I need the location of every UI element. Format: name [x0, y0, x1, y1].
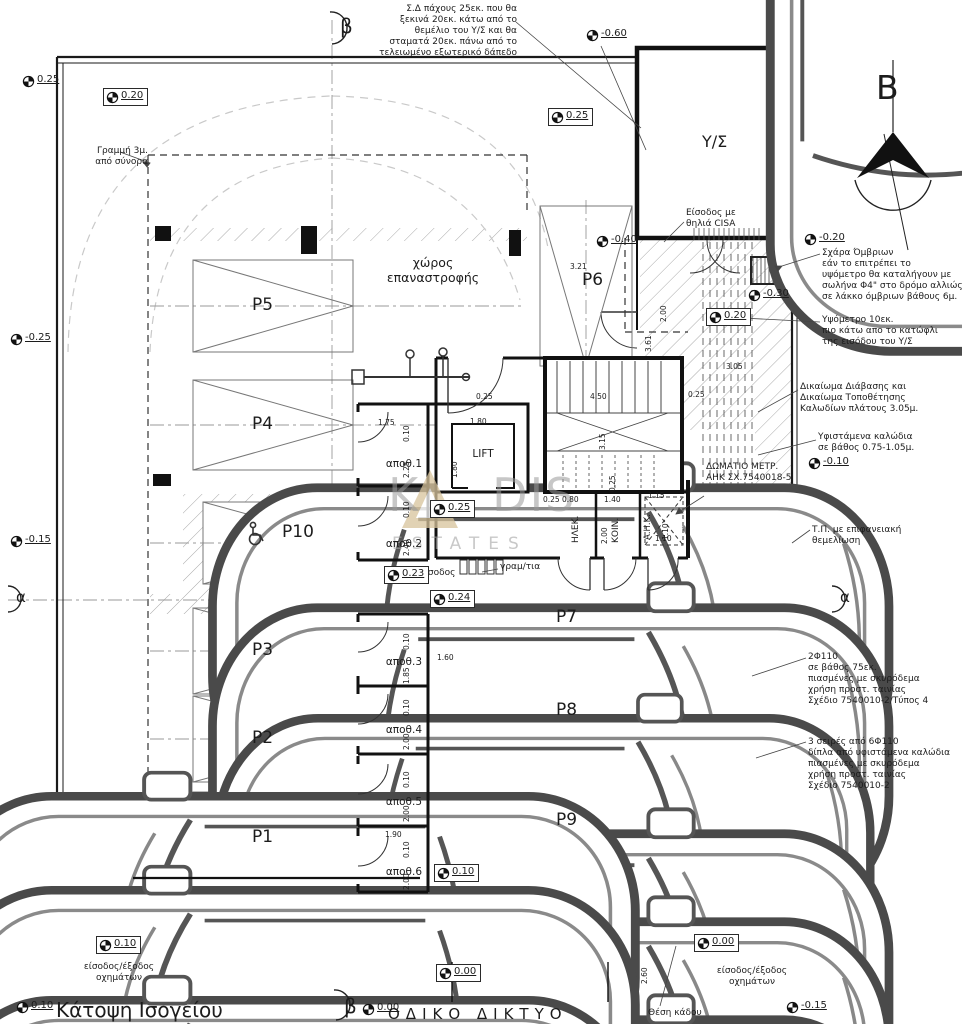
benchmark-icon [16, 1001, 29, 1014]
note-ypsometro: Υψόμετρο 10εκ. πιο κάτω απο το κατώφλι τ… [822, 315, 938, 348]
dim-wall-025c: 0.25 [543, 495, 560, 504]
elev-right-top: -0.20 [804, 232, 845, 246]
label-road-network: ΟΔΙΚΟ ΔΙΚΤΥΟ [388, 1005, 568, 1023]
room-substation: Υ/Σ [702, 132, 727, 152]
stall-p9: P9 [556, 810, 577, 831]
elev-box-bl: 0.10 [96, 936, 141, 954]
benchmark-icon [106, 91, 119, 104]
note-boundary: Γραμμή 3μ. από σύνορα [76, 146, 148, 168]
stall-p1: P1 [252, 827, 273, 848]
benchmark-icon [362, 1003, 375, 1016]
elev-left-low: -0.15 [10, 534, 51, 548]
dim-wall-025b: 0.25 [688, 390, 705, 399]
benchmark-icon [808, 457, 821, 470]
plan-title: Κάτοψη Ισογείου [56, 998, 223, 1022]
dim-bin: 2.60 [640, 967, 649, 984]
room-apoth5: αποθ.5 [372, 796, 422, 809]
dim-apoth2-d: 2.40 [402, 539, 411, 556]
elev-left-mid: -0.25 [10, 332, 51, 346]
dim-wall-010e: 0.10 [402, 771, 411, 788]
benchmark-icon [709, 311, 722, 324]
dim-lift-d: 1.80 [450, 461, 459, 478]
benchmark-icon [437, 867, 450, 880]
benchmark-icon [804, 233, 817, 246]
dim-wall-025v: 0.25 [608, 475, 617, 492]
note-2f110: 2Φ110 σε βάθος 75εκ. πιασμένες με σκυρόδ… [808, 652, 928, 707]
elev-box-ramp: 0.10 [434, 864, 479, 882]
elev-road: 0.00 [362, 1002, 399, 1016]
elev-p6: -0.40 [596, 234, 637, 248]
benchmark-icon [748, 289, 761, 302]
stall-p6: P6 [582, 270, 603, 291]
dim-stair-depth: 3.15 [598, 433, 607, 450]
benchmark-icon [596, 235, 609, 248]
room-apoth1: αποθ.1 [372, 458, 422, 471]
dim-lift-w: 1.80 [470, 417, 487, 426]
elev-right-mid: -0.10 [808, 456, 849, 470]
note-tp: Τ.Π. με επιφανειακή θεμελίωση [812, 525, 901, 547]
dim-walkway: 1.60 [437, 653, 454, 662]
dim-p6-width: 3.21 [570, 262, 587, 271]
stall-p3: P3 [252, 640, 273, 661]
dim-apoth6-w: 1.90 [385, 830, 402, 839]
note-cisa: Είσοδος με θηλιά CISA [686, 208, 736, 230]
elev-left-top: 0.25 [22, 74, 59, 88]
note-yfistamena: Υφιστάμενα καλώδια σε βάθος 0.75-1.05μ. [818, 432, 914, 454]
note-6f110: 3 σειρές από 6Φ110 δίπλα από υφιστάμενα … [808, 737, 950, 792]
elev-box-top: 0.25 [548, 108, 593, 126]
note-dikaioma: Δικαίωμα Διάβασης και Δικαίωμα Τοποθέτησ… [800, 382, 918, 415]
dim-koin-d: 2.00 [600, 527, 609, 544]
dim-corridor: 3.05 [726, 362, 743, 371]
dim-ys-side: 3.61 [644, 335, 653, 352]
room-lift: LIFT [458, 448, 508, 461]
room-ilek: ΗΛΕΚ. [571, 516, 582, 543]
dim-ahk-box-h: 1.10 [661, 523, 670, 540]
dim-wall-010f: 0.10 [402, 841, 411, 858]
room-apoth2: αποθ.2 [372, 538, 422, 551]
room-ahk: Α.Η.Κ. [643, 514, 653, 540]
stall-p5: P5 [252, 295, 273, 316]
dim-apoth1-d: 2.25 [402, 461, 411, 478]
dim-ys-door: 2.00 [659, 305, 668, 322]
dim-apoth4-d: 2.00 [402, 733, 411, 750]
elev-box-024: 0.24 [430, 590, 475, 608]
elev-top: -0.60 [586, 28, 627, 42]
elev-box-023: 0.23 [384, 566, 429, 584]
dim-wall-010c: 0.10 [402, 633, 411, 650]
benchmark-icon [10, 333, 23, 346]
elev-title: 0.10 [16, 1000, 53, 1014]
stall-p8: P8 [556, 700, 577, 721]
elev-grate: -0.30 [748, 288, 789, 302]
label-vehicle-access-left: είσοδος/έξοδος οχημάτων [64, 962, 174, 984]
mailboxes [460, 560, 503, 574]
north-letter: B [876, 68, 899, 108]
benchmark-icon [439, 967, 452, 980]
benchmark-icon [387, 569, 400, 582]
stall-p7: P7 [556, 607, 577, 628]
benchmark-icon [697, 937, 710, 950]
dim-wall-010a: 0.10 [402, 425, 411, 442]
note-sd: Σ.Δ πάχους 25εκ. που θα ξεκινά 20εκ. κάτ… [345, 4, 517, 59]
benchmark-icon [786, 1001, 799, 1014]
elev-box-br: 0.00 [694, 934, 739, 952]
benchmark-icon [586, 29, 599, 42]
room-koin: ΚΟΙΝ. [611, 518, 622, 543]
section-alpha-right: α [840, 588, 850, 606]
dim-ahk-w: 1.15 [648, 491, 665, 500]
section-beta-bottom: β [344, 994, 357, 1018]
label-bin-location: Θέση κάδου [648, 1008, 702, 1019]
dim-apoth1-w: 1.75 [378, 418, 395, 427]
site-plan: KDIS ESTATES Σ.Δ πάχους 25εκ. που θα ξεκ… [0, 0, 962, 1024]
benchmark-icon [22, 75, 35, 88]
label-turning-area: χώρος επαναστροφής [383, 255, 483, 286]
room-apoth3: αποθ.3 [372, 656, 422, 669]
dim-apoth3-d: 1.85 [402, 667, 411, 684]
elev-box-cross: 0.00 [436, 964, 481, 982]
benchmark-icon [10, 535, 23, 548]
stall-p4: P4 [252, 414, 273, 435]
stall-p10: P10 [282, 522, 314, 543]
elev-box-tl: 0.20 [103, 88, 148, 106]
barrier-gate [352, 348, 470, 384]
dim-apoth6-d: 2.00 [402, 873, 411, 890]
benchmark-icon [551, 111, 564, 124]
dim-wall-010d: 0.10 [402, 699, 411, 716]
section-beta-top: β [340, 14, 353, 38]
stall-p2: P2 [252, 728, 273, 749]
dim-ilek: 0.80 [562, 495, 579, 504]
dim-wall-010b: 0.10 [402, 501, 411, 518]
dim-stair-width: 4.50 [590, 392, 607, 401]
note-grate: Σχάρα Όμβριων εάν το επιτρέπει το υψόμετ… [822, 248, 962, 303]
dim-koin-w: 1.40 [604, 495, 621, 504]
benchmark-icon [433, 593, 446, 606]
note-meter-room: ΔΩΜΑΤΙΟ ΜΕΤΡ. ΑΗΚ ΣΧ.7540018-5 [706, 462, 791, 484]
elev-box-entry: 0.25 [430, 500, 475, 518]
elev-bottom-right: -0.15 [786, 1000, 827, 1014]
label-mailboxes: γραμ/τια [500, 562, 540, 573]
room-apoth6: αποθ.6 [372, 866, 422, 879]
section-alpha-left: α [16, 588, 26, 606]
benchmark-icon [433, 503, 446, 516]
label-vehicle-access-right: είσοδος/έξοδος οχημάτων [698, 966, 806, 988]
elev-box-ys: 0.20 [706, 308, 751, 326]
room-apoth4: αποθ.4 [372, 724, 422, 737]
dim-wall-025a: 0.25 [476, 392, 493, 401]
dim-apoth5-d: 2.00 [402, 805, 411, 822]
benchmark-icon [99, 939, 112, 952]
